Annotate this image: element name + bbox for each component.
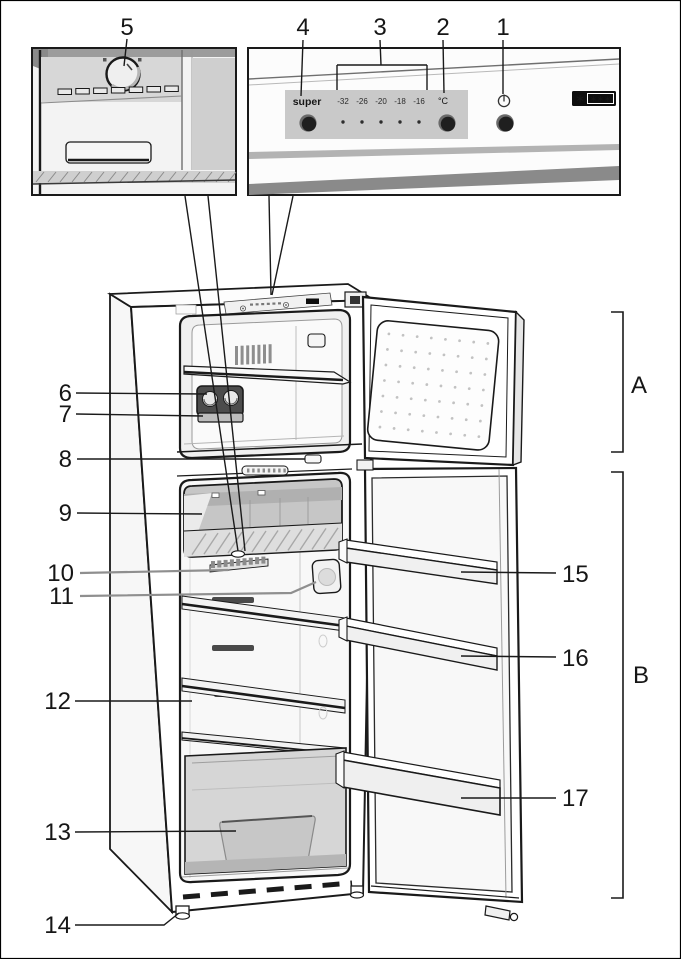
freezer-backwall-flap (308, 334, 325, 347)
callout-14: 14 (44, 912, 71, 939)
callout-16: 16 (562, 645, 589, 672)
temp-label: -20 (375, 97, 387, 106)
single-star: ∗ (575, 92, 585, 106)
temp-label: -16 (413, 97, 425, 106)
callout-9: 9 (59, 500, 72, 527)
callout-13: 13 (44, 819, 71, 846)
inset-knob-panel (32, 48, 236, 195)
callout-3: 3 (373, 14, 386, 41)
callout-17: 17 (562, 785, 589, 812)
triple-star: ∗∗∗ (590, 94, 611, 104)
temperature-button (438, 114, 455, 131)
chiller-handle-notch (232, 551, 245, 557)
temp-label: -26 (356, 97, 368, 106)
section-label-a: A (631, 372, 647, 399)
callout-12: 12 (44, 688, 71, 715)
chiller-compartment (184, 479, 342, 557)
leader-6 (76, 393, 207, 394)
freezer-door-liner (367, 320, 500, 451)
callout-1: 1 (496, 14, 509, 41)
celsius-label: °C (438, 96, 449, 106)
star-rating-badge: ∗ ∗∗∗ (572, 91, 616, 106)
manual-figure-fridge-overview: A B (0, 0, 681, 959)
leader-2 (443, 40, 444, 93)
ice-tray-holder (197, 386, 243, 422)
foot-front-left (176, 906, 190, 919)
shelf-bracket (212, 645, 254, 651)
super-label: super (293, 96, 322, 108)
temp-label: -18 (394, 97, 406, 106)
callout-8: 8 (59, 446, 72, 473)
callout-5: 5 (120, 14, 133, 41)
power-button (496, 114, 514, 132)
super-button (299, 114, 316, 131)
foot-front-right (351, 886, 364, 898)
inset-control-panel: super -32 -26 -20 -18 -16 °C (248, 48, 620, 195)
leader-16 (461, 656, 556, 657)
fridge-compartment (180, 473, 350, 882)
figure-artwork: A B (0, 0, 681, 959)
interior-lamp (312, 559, 341, 594)
leader-13 (75, 831, 236, 832)
callout-11: 11 (49, 583, 74, 610)
divider-switch (305, 455, 321, 463)
fridge-door-hinge-middle (357, 460, 373, 470)
freezer-door (363, 297, 524, 465)
mini-star-badge (306, 299, 319, 305)
callout-4: 4 (296, 14, 309, 41)
temp-label: -32 (337, 97, 349, 106)
callout-2: 2 (436, 14, 449, 41)
callout-15: 15 (562, 561, 589, 588)
leader-15 (461, 572, 556, 573)
door-handle-recess (66, 142, 151, 163)
leader-9 (77, 513, 202, 514)
ice-tray-shelf (198, 413, 243, 422)
section-label-b: B (633, 662, 649, 689)
divider-vent (242, 466, 288, 475)
callout-7: 7 (59, 401, 72, 428)
vegetable-drawer (185, 748, 346, 874)
